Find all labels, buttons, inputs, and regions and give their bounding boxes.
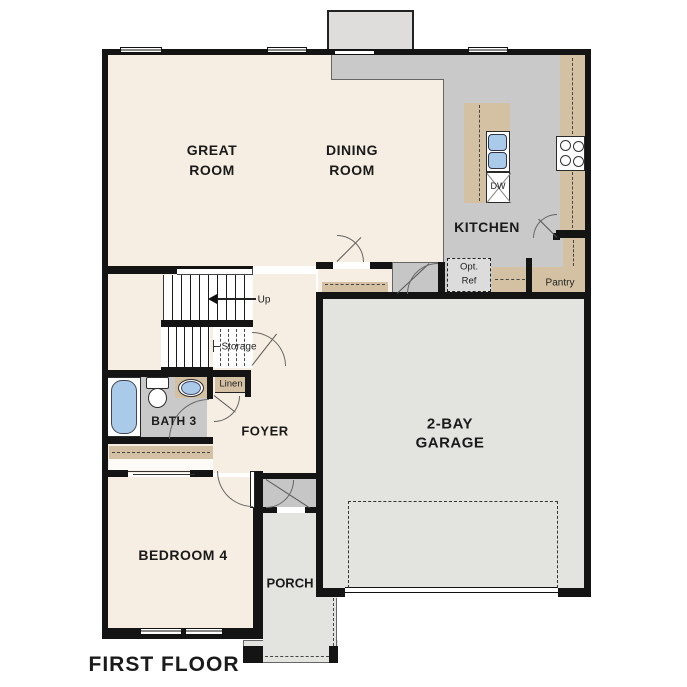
- bedroom4-label: BEDROOM 4: [138, 547, 227, 563]
- opt-ref-label-1: Opt.: [460, 262, 478, 273]
- up-arrow-line: [216, 298, 256, 300]
- rear-bump-out: [327, 10, 414, 52]
- entry-wall-porch: [305, 507, 317, 513]
- exterior-wall-right: [585, 49, 591, 299]
- exterior-wall-left: [102, 49, 108, 638]
- great-room-label-2: ROOM: [189, 162, 235, 178]
- up-arrow-head: [208, 294, 217, 304]
- dishwasher-label: DW: [491, 181, 506, 191]
- burner: [560, 140, 571, 151]
- garage-wall-right: [584, 299, 591, 596]
- entry-wall: [438, 262, 445, 299]
- porch-label: PORCH: [267, 576, 314, 591]
- sink-bowl-1: [488, 134, 507, 151]
- window: [120, 47, 162, 53]
- closet-bypass-door: [128, 471, 190, 472]
- pantry-label: Pantry: [546, 278, 575, 289]
- garage-corner: [316, 588, 345, 597]
- burner: [560, 155, 571, 166]
- bedroom-wall-top: [102, 470, 128, 477]
- linen-wall-right: [245, 370, 251, 397]
- island-dashed-line: [479, 105, 480, 201]
- window: [140, 628, 182, 635]
- porch-edge: [243, 640, 263, 641]
- great-room-wall: [102, 266, 177, 274]
- bathtub: [111, 380, 137, 434]
- bedroom-closet-floor: [109, 459, 213, 470]
- garage-corner: [558, 588, 591, 597]
- pantry-wall-left: [526, 258, 532, 299]
- opt-ref-label-2: Ref: [462, 276, 477, 287]
- linen-label: Linen: [219, 379, 242, 390]
- stairs-lower-run: [161, 327, 210, 368]
- great-room-label-1: GREAT: [187, 142, 237, 158]
- floor-edge: [443, 79, 444, 263]
- closet-rod-dashed: [325, 284, 385, 285]
- dining-room-label-1: DINING: [326, 142, 378, 158]
- window: [468, 47, 508, 53]
- porch-roof-dashed-line: [333, 598, 334, 646]
- floor-plan: GREAT ROOM DINING ROOM KITCHEN 2-BAY GAR…: [0, 0, 687, 687]
- window: [267, 47, 307, 53]
- counter-dashed-line: [572, 58, 573, 134]
- sink-bowl-2: [488, 152, 507, 169]
- garage-label-1: 2-BAY: [427, 416, 473, 433]
- foyer-wall-south: [253, 473, 320, 479]
- porch-post: [329, 646, 338, 663]
- storage-label: Storage: [221, 342, 256, 353]
- bath-wall-top: [102, 370, 251, 377]
- garage-wall-left: [316, 295, 323, 588]
- porch-dashed-edge: [265, 656, 329, 657]
- up-label: Up: [258, 295, 271, 306]
- porch-post: [243, 646, 263, 663]
- storage-leader-line: [213, 346, 220, 347]
- kitchen-label: KITCHEN: [454, 219, 520, 235]
- patio-door: [334, 50, 375, 55]
- bath-wall-right: [207, 377, 213, 399]
- burner: [573, 141, 584, 152]
- bedroom-wall-bottom: [102, 628, 263, 639]
- closet-wall: [370, 262, 392, 269]
- great-room-floor: [108, 54, 331, 266]
- closet-wall: [316, 262, 333, 269]
- foyer-label: FOYER: [241, 424, 288, 439]
- counter-wall: [556, 230, 591, 238]
- pantry-dashed-line: [573, 240, 574, 266]
- pantry-cabinet: [563, 238, 585, 267]
- cabinet-dashed-line: [495, 279, 525, 280]
- floor-edge: [392, 262, 393, 295]
- toilet-bowl: [148, 388, 167, 408]
- floor-edge: [331, 79, 444, 80]
- garage-wall-top: [316, 292, 591, 299]
- kitchen-floor-top: [331, 54, 585, 80]
- window: [185, 628, 223, 635]
- plan-title: FIRST FLOOR: [89, 653, 240, 677]
- stair-half-wall: [177, 266, 253, 275]
- dining-room-label-2: ROOM: [329, 162, 375, 178]
- floor-edge: [331, 54, 332, 80]
- sink-basin: [181, 381, 201, 395]
- garage-label-2: GARAGE: [416, 435, 485, 452]
- closet-bypass-door: [133, 474, 195, 475]
- bath3-label: BATH 3: [151, 414, 196, 428]
- garage-door-dashed-outline: [348, 501, 558, 588]
- stair-landing-wall: [161, 320, 253, 327]
- closet-rod-dashed: [112, 452, 210, 453]
- porch-edge: [336, 598, 337, 646]
- counter-dashed-line: [572, 172, 573, 228]
- burner: [573, 156, 584, 167]
